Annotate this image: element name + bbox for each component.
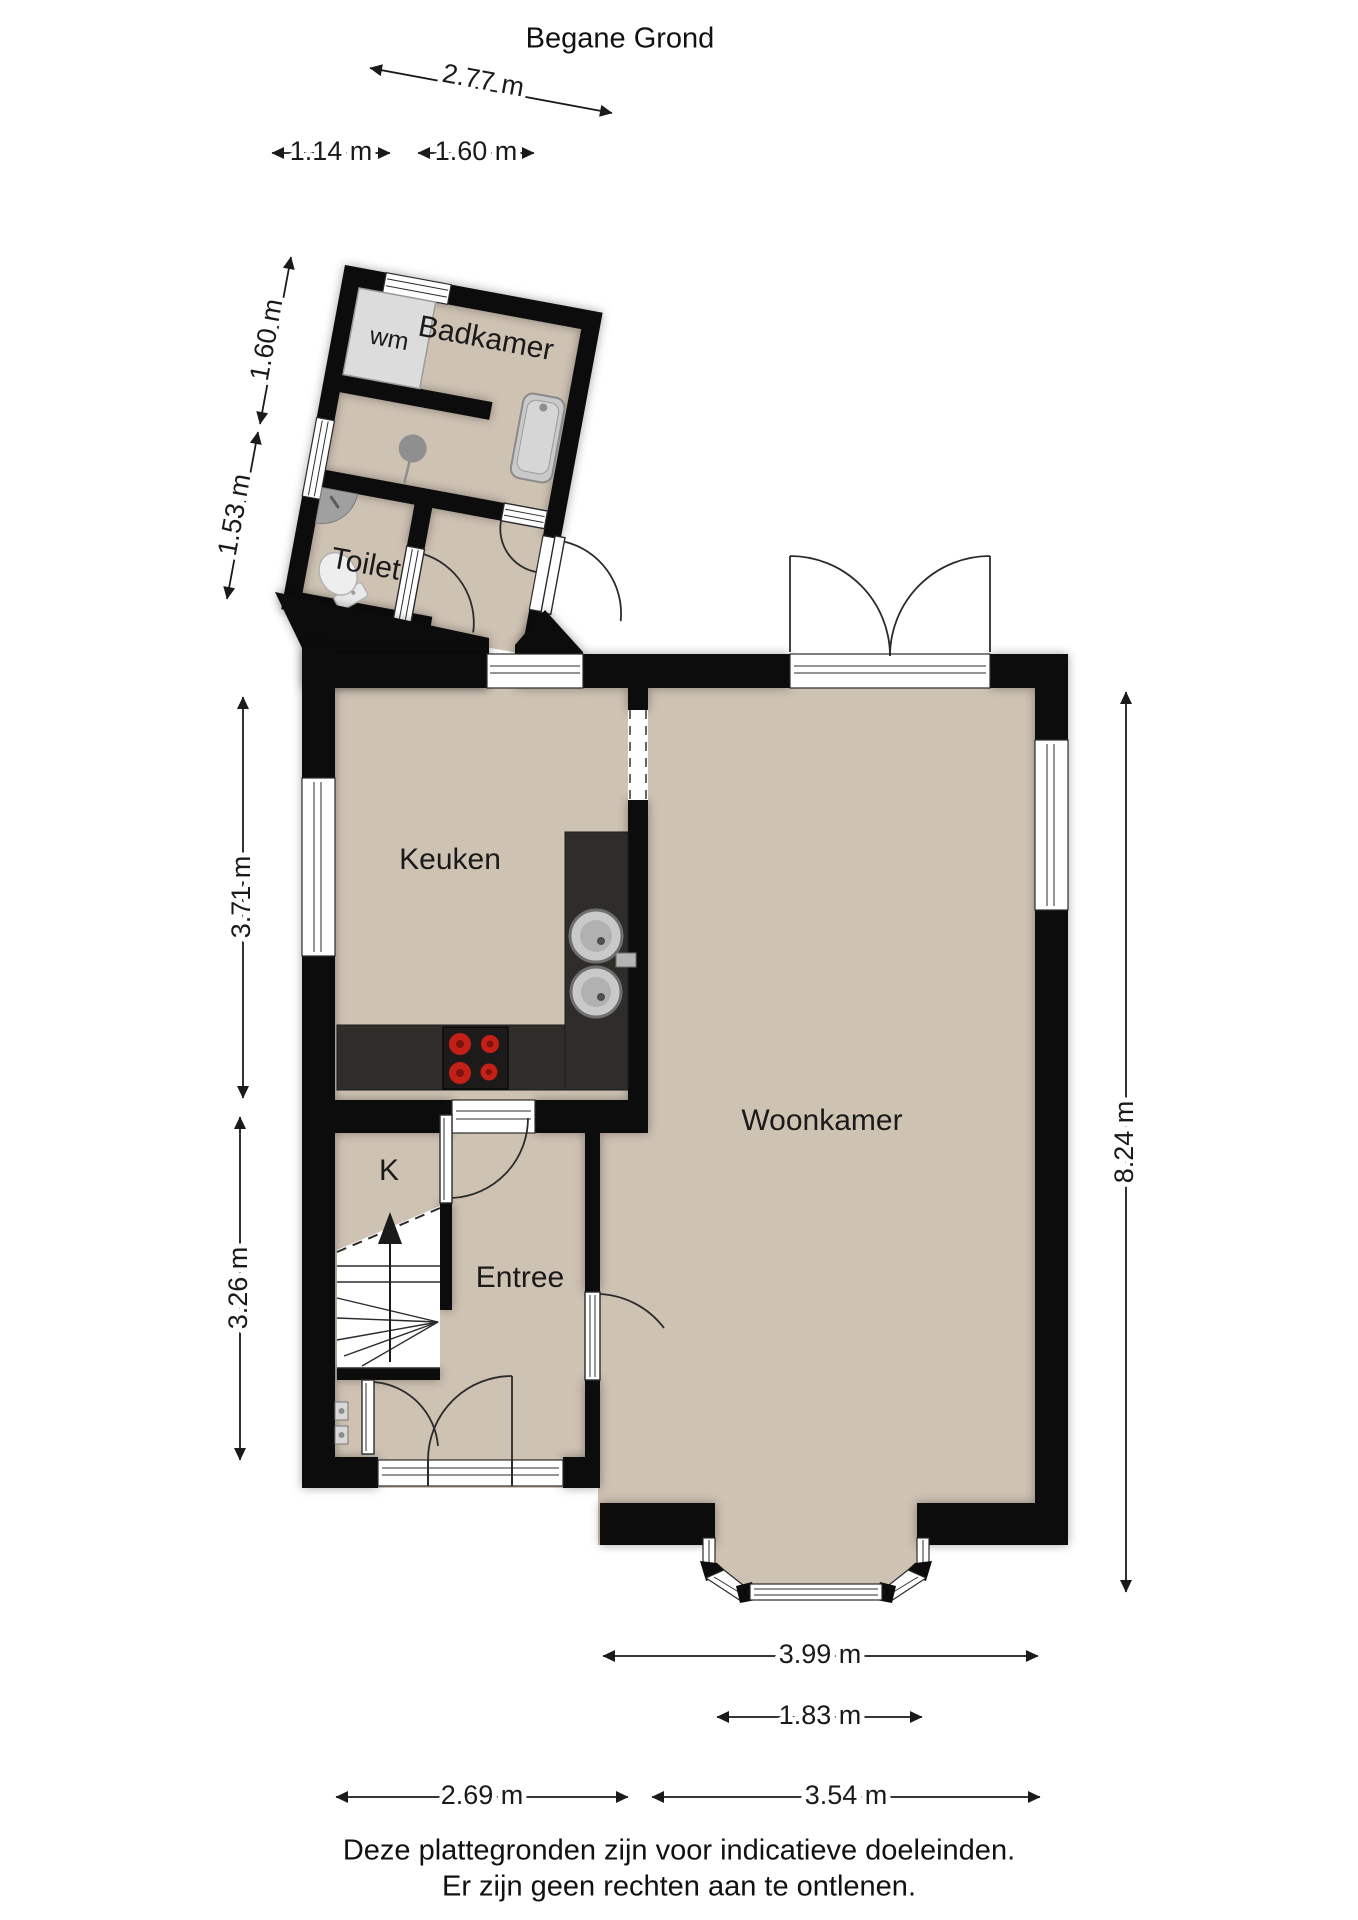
french-doors [790, 556, 990, 688]
dim-bottom-right: 3.54 m [805, 1780, 888, 1810]
footer-line1: Deze plattegronden zijn voor indicatieve… [343, 1835, 1015, 1867]
stove-icon [443, 1027, 508, 1089]
dim-bottom-left: 2.69 m [441, 1780, 524, 1810]
footer-line2: Er zijn geen rechten aan te ontlenen. [442, 1871, 916, 1903]
front-facade [378, 1460, 563, 1486]
outside-area [240, 1488, 598, 1688]
dim-bottom-livingroom: 3.99 m [779, 1639, 862, 1669]
kitchen-top-window [487, 654, 583, 688]
dim-side-kitchen: 3.71 m [226, 856, 256, 939]
dim-side-upper: 1.60 m [244, 296, 289, 383]
dim-side-lower: 3.26 m [223, 1247, 253, 1330]
dim-top-left: 1.14 m [290, 136, 373, 166]
floorplan-page: Badkamer wm Toilet [0, 0, 1358, 1920]
room-label-entree: Entree [476, 1261, 564, 1294]
room-label-keuken: Keuken [399, 843, 501, 876]
livingroom-right-window [1035, 740, 1068, 910]
floorplan-canvas: Badkamer wm Toilet [0, 0, 1358, 1920]
dim-top-right: 1.60 m [435, 136, 518, 166]
dim-side-mid: 1.53 m [212, 471, 257, 558]
main-floor [302, 654, 1068, 1545]
kitchen-passage [628, 710, 648, 800]
room-label-closet: K [379, 1154, 399, 1187]
dim-right-total: 8.24 m [1109, 1101, 1139, 1184]
room-label-woonkamer: Woonkamer [741, 1104, 902, 1137]
dim-bottom-bay: 1.83 m [779, 1700, 862, 1730]
page-title: Begane Grond [526, 23, 715, 55]
kitchen-left-window [302, 778, 335, 956]
dim-top-total: 2.77 m [440, 58, 527, 103]
